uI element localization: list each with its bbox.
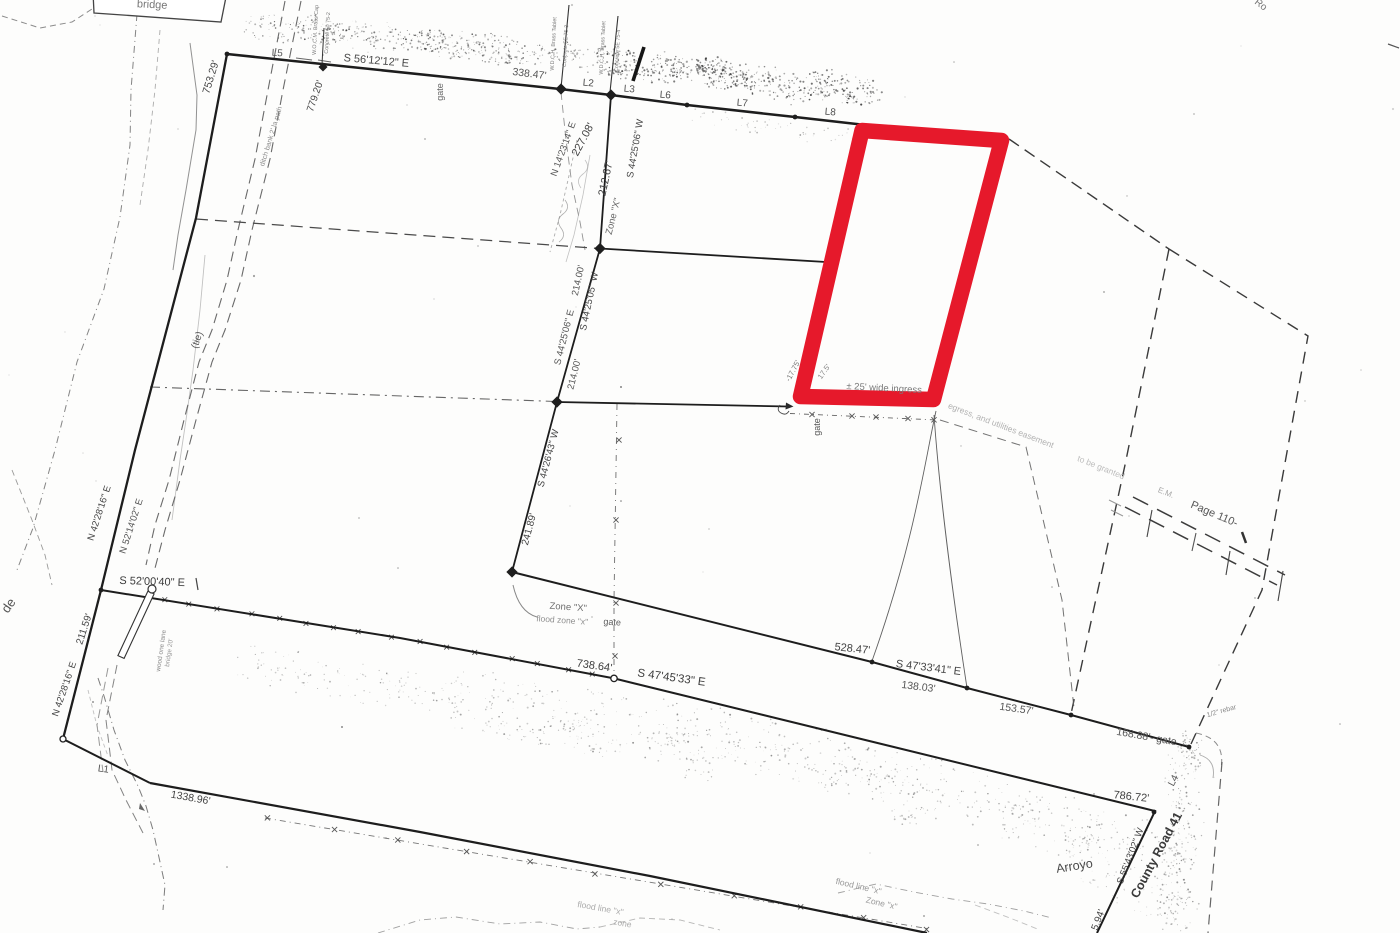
svg-text:L7: L7 <box>736 98 748 110</box>
svg-text:gate: gate <box>435 83 445 101</box>
svg-text:L5: L5 <box>271 48 283 60</box>
svg-text:L3: L3 <box>623 84 635 96</box>
svg-text:L6: L6 <box>659 90 671 102</box>
svg-text:L2: L2 <box>582 78 594 90</box>
svg-text:L8: L8 <box>824 107 836 119</box>
svg-text:gate: gate <box>812 418 822 436</box>
svg-text:L1: L1 <box>97 763 110 776</box>
svg-text:bridge: bridge <box>137 0 168 12</box>
svg-text:S 52'00'40" E: S 52'00'40" E <box>119 575 185 589</box>
svg-text:gate: gate <box>603 616 621 627</box>
